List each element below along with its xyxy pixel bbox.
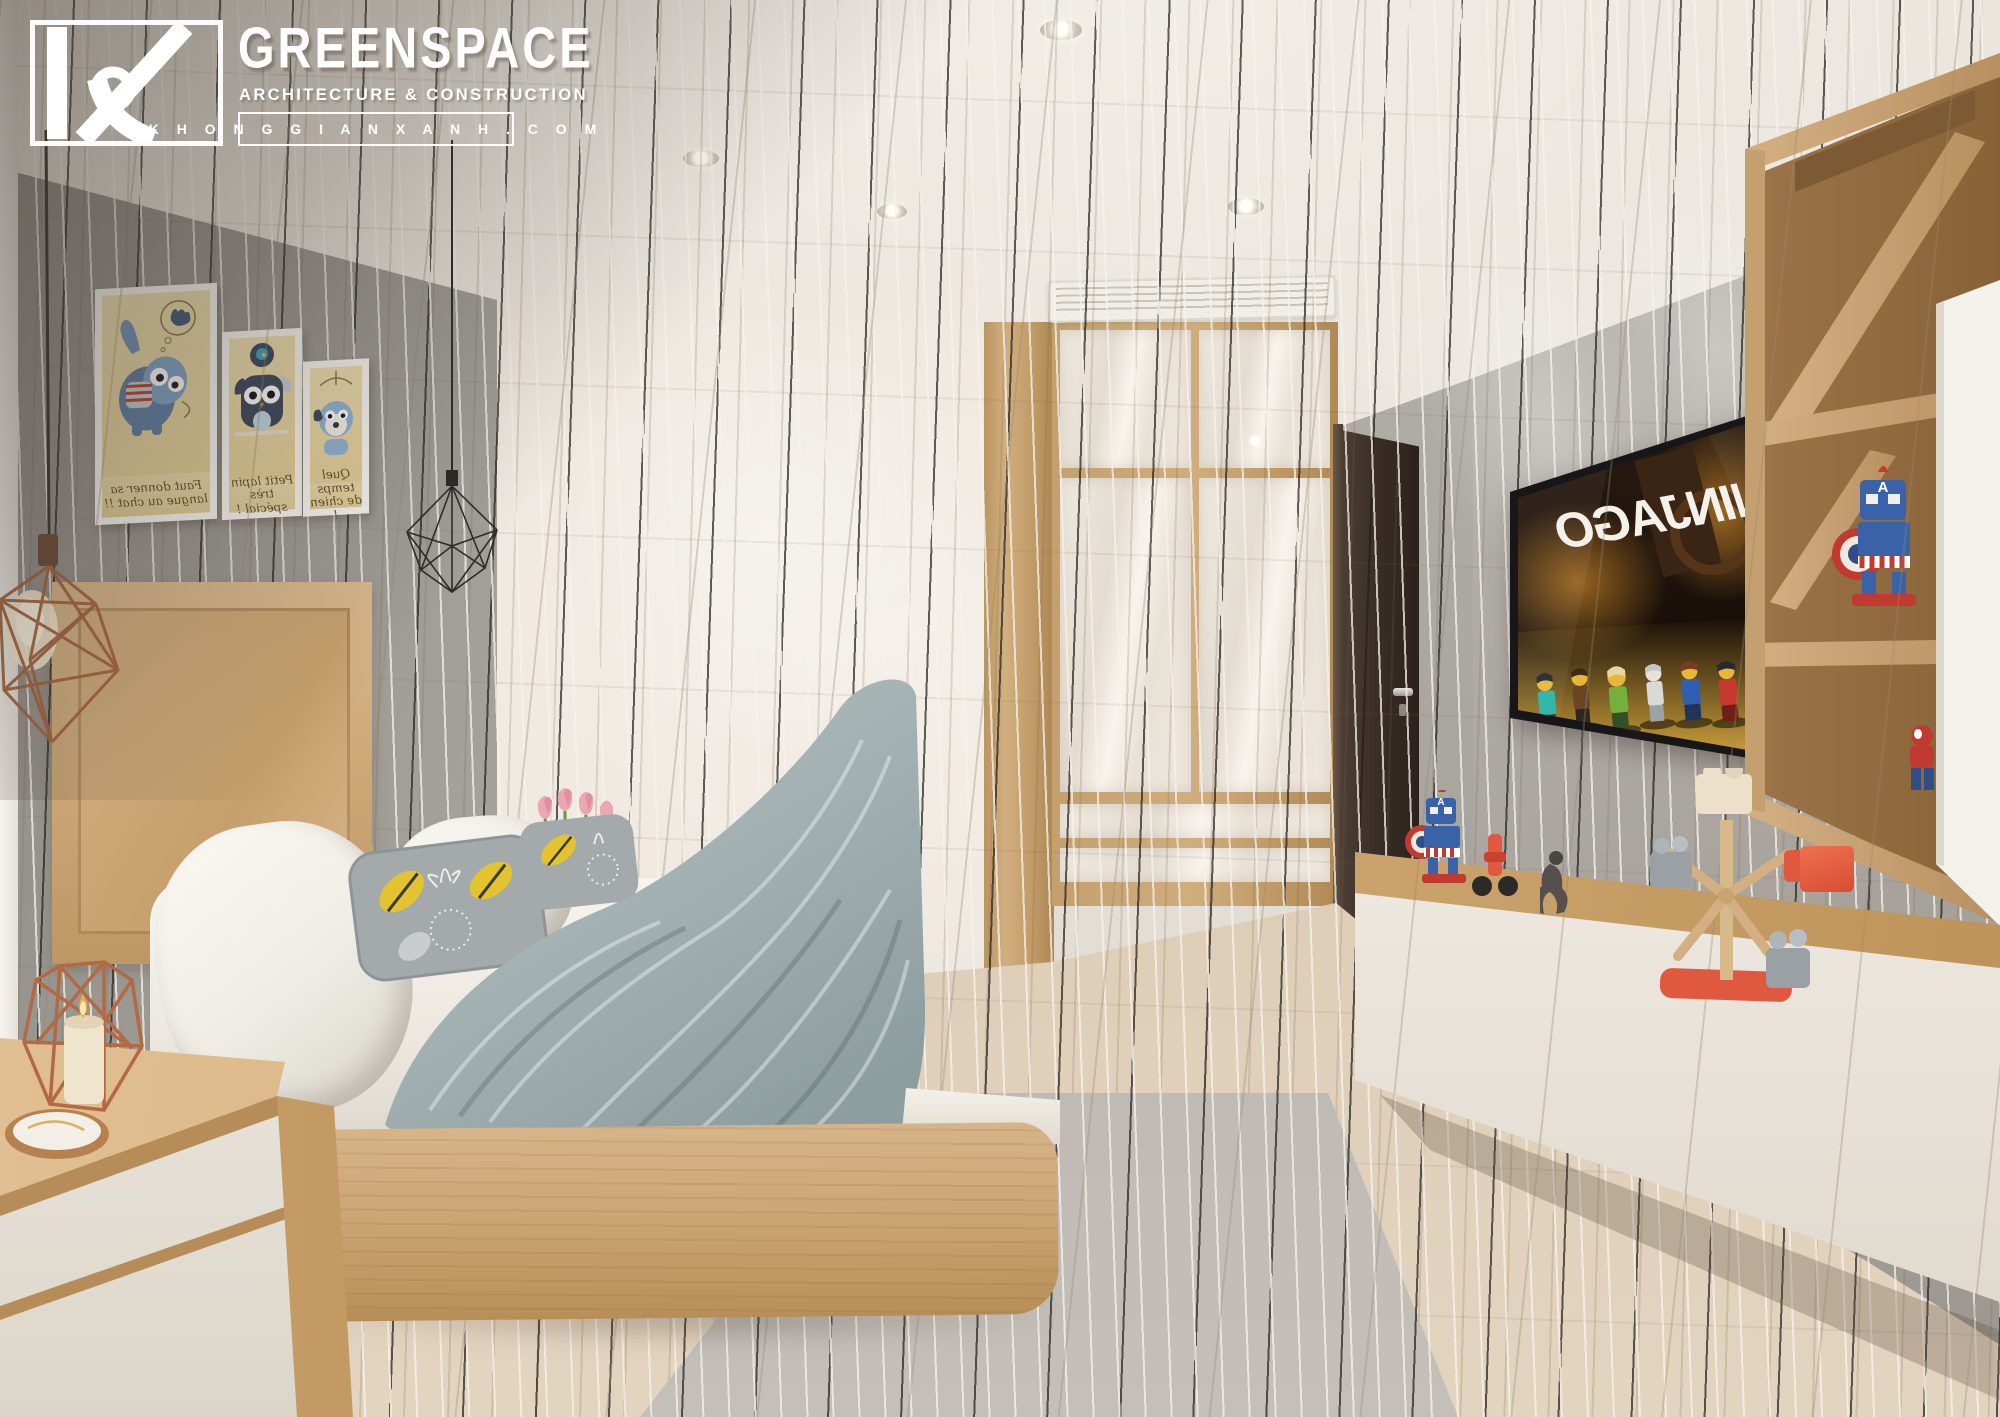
svg-text:A: A <box>1437 797 1444 808</box>
brand-website: K H O N G G I A N X A N H . C O M <box>238 112 514 146</box>
red-scooter-toy <box>1470 830 1520 900</box>
captain-america-robot-toy: A <box>1404 790 1474 890</box>
brand-tagline: ARCHITECTURE & CONSTRUCTION <box>239 86 588 105</box>
bed-frame-base <box>279 1122 1059 1322</box>
dark-figurine <box>1540 848 1576 918</box>
bedroom-render: Faut donner sa langue au chat !! Petit l… <box>0 0 2000 1417</box>
wooden-ferris-wheel-toy <box>1648 768 1823 1008</box>
brand-name: GREENSPACE <box>238 14 594 81</box>
copper-candle-lantern <box>16 958 148 1123</box>
orange-block-toy <box>1800 846 1854 892</box>
bed-frame-grain <box>279 1122 1059 1322</box>
